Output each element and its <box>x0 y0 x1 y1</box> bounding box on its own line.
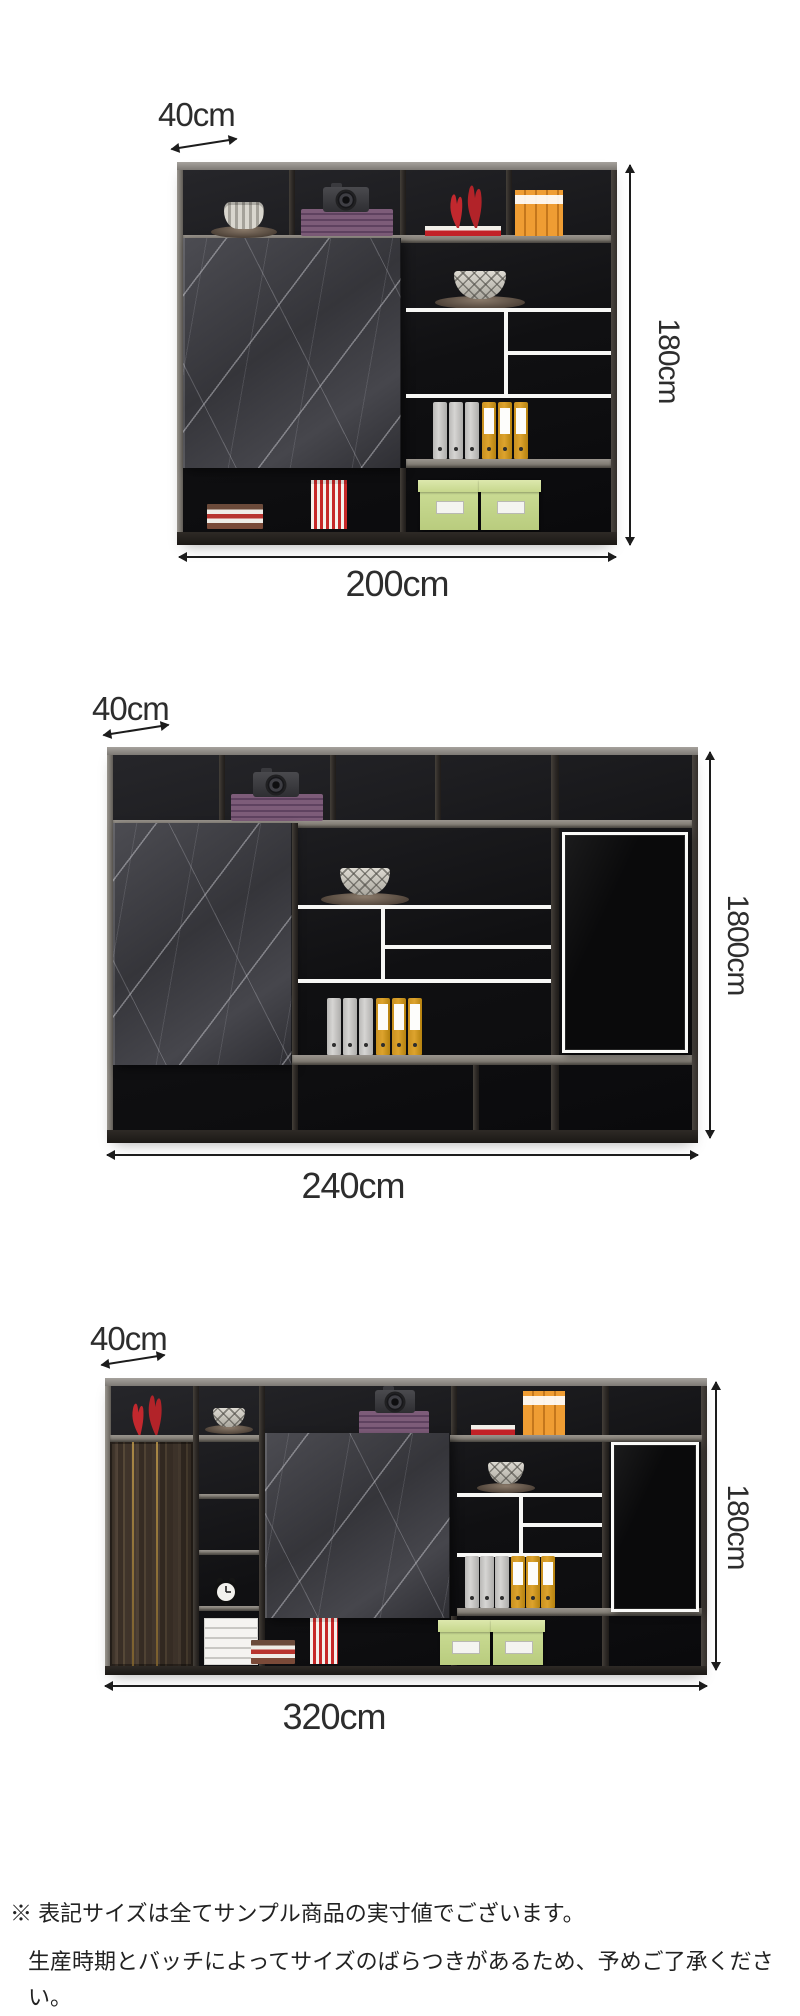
orange-books <box>515 190 563 236</box>
bookcase-320cm <box>105 1378 707 1675</box>
red-vases <box>125 1392 169 1435</box>
white-divider-line <box>519 1497 523 1557</box>
ring-binder-yellow <box>541 1556 555 1608</box>
width-arrow-2 <box>107 1154 698 1156</box>
divider <box>506 170 512 236</box>
height-arrow-1 <box>629 165 631 545</box>
glass-door <box>611 1442 699 1612</box>
ring-binder-yellow <box>408 998 422 1055</box>
ring-binder-gray <box>495 1556 509 1608</box>
width-label-3: 320cm <box>134 1696 534 1738</box>
divider <box>551 755 559 1130</box>
width-label-2: 240cm <box>153 1165 553 1207</box>
bookcase-200cm <box>177 162 617 545</box>
divider <box>473 1065 479 1130</box>
shelf <box>199 1606 259 1611</box>
green-storage-box <box>440 1620 490 1665</box>
cabinet-right-edge <box>692 755 698 1143</box>
ring-binder-gray <box>465 1556 479 1608</box>
divider <box>292 823 298 1065</box>
red-vases <box>439 182 493 228</box>
footnote-line-2: 生産時期とバッチによってサイズのばらつきがあるため、予めご了承ください。 <box>10 1944 794 2016</box>
height-label-1: 180cm <box>651 291 685 431</box>
divider <box>602 1386 609 1666</box>
red-book-stack <box>471 1425 515 1435</box>
striped-books <box>311 480 347 529</box>
white-shelf-line <box>406 308 611 312</box>
cabinet-right-edge <box>611 170 617 545</box>
cabinet-right-edge <box>701 1386 707 1675</box>
divider <box>193 1386 199 1435</box>
glass-door <box>562 832 688 1053</box>
ring-binder-yellow <box>514 402 528 459</box>
divider <box>330 755 336 821</box>
ring-binder-gray <box>480 1556 494 1608</box>
ring-binder-gray <box>433 402 447 459</box>
camera <box>253 772 299 797</box>
divider <box>451 1386 457 1435</box>
width-arrow-3 <box>105 1685 707 1687</box>
white-shelf-line <box>385 945 551 949</box>
cabinet-base <box>107 1130 698 1143</box>
divider <box>400 170 406 243</box>
green-storage-box <box>493 1620 543 1665</box>
purple-storage-box <box>231 794 323 821</box>
striped-books <box>310 1618 338 1664</box>
white-shelf-line <box>406 394 611 398</box>
marble-sliding-door <box>265 1433 450 1618</box>
height-arrow-3 <box>715 1382 717 1670</box>
bookcase-240cm <box>107 747 698 1143</box>
ring-binder-gray <box>327 998 341 1055</box>
ring-binder-gray <box>359 998 373 1055</box>
white-shelf-line <box>523 1523 602 1527</box>
divider <box>259 1386 265 1435</box>
cabinet-base <box>105 1666 707 1675</box>
cabinet-top-panel <box>107 747 698 755</box>
ring-binder-yellow <box>376 998 390 1055</box>
camera <box>323 187 369 212</box>
divider <box>289 170 295 236</box>
marble-sliding-door <box>113 823 292 1065</box>
width-arrow-1 <box>179 556 616 558</box>
shelf <box>199 1494 259 1499</box>
divider <box>292 1065 298 1130</box>
white-shelf-line <box>457 1493 602 1497</box>
height-label-2: 1800cm <box>720 863 754 1027</box>
footnote-line-1: ※ 表記サイズは全てサンプル商品の実寸値でございます。 <box>10 1896 794 1932</box>
ring-binder-yellow <box>482 402 496 459</box>
green-storage-box <box>481 480 539 530</box>
shelf <box>199 1550 259 1555</box>
divider <box>400 468 406 532</box>
height-label-3: 180cm <box>720 1457 754 1597</box>
green-storage-box <box>420 480 478 530</box>
divider <box>219 755 225 821</box>
cabinet-base <box>177 532 617 545</box>
cabinet-top-panel <box>177 162 617 170</box>
ring-binder-gray <box>343 998 357 1055</box>
ring-binder-yellow <box>511 1556 525 1608</box>
book-stack <box>207 504 263 529</box>
marble-sliding-door <box>183 238 401 468</box>
shelf <box>406 459 611 468</box>
cabinet-top-panel <box>105 1378 707 1386</box>
footnote: ※ 表記サイズは全てサンプル商品の実寸値でございます。 生産時期とバッチによって… <box>10 1896 794 2016</box>
divider <box>435 755 441 821</box>
white-divider-line <box>504 312 508 398</box>
shelf <box>292 1055 692 1065</box>
white-shelf-line <box>298 979 551 983</box>
white-shelf-line <box>508 351 611 355</box>
decor-tray <box>477 1483 535 1493</box>
orange-books <box>523 1391 565 1435</box>
camera <box>375 1390 415 1413</box>
alarm-clock <box>213 1576 239 1606</box>
width-label-1: 200cm <box>177 563 617 605</box>
white-shelf-line <box>298 905 551 909</box>
depth-arrow-1 <box>171 138 237 150</box>
purple-storage-box <box>301 209 393 236</box>
ring-binder-yellow <box>498 402 512 459</box>
ring-binder-gray <box>465 402 479 459</box>
white-tray-stack <box>204 1618 258 1665</box>
decor-ribbed-pot <box>224 202 264 229</box>
height-arrow-2 <box>709 752 711 1138</box>
book-stack <box>251 1640 295 1664</box>
depth-label-1: 40cm <box>158 96 235 134</box>
ring-binder-gray <box>449 402 463 459</box>
purple-storage-box <box>359 1411 429 1435</box>
depth-label-2: 40cm <box>92 690 169 728</box>
wood-door <box>110 1442 193 1666</box>
ring-binder-yellow <box>526 1556 540 1608</box>
ring-binder-yellow <box>392 998 406 1055</box>
